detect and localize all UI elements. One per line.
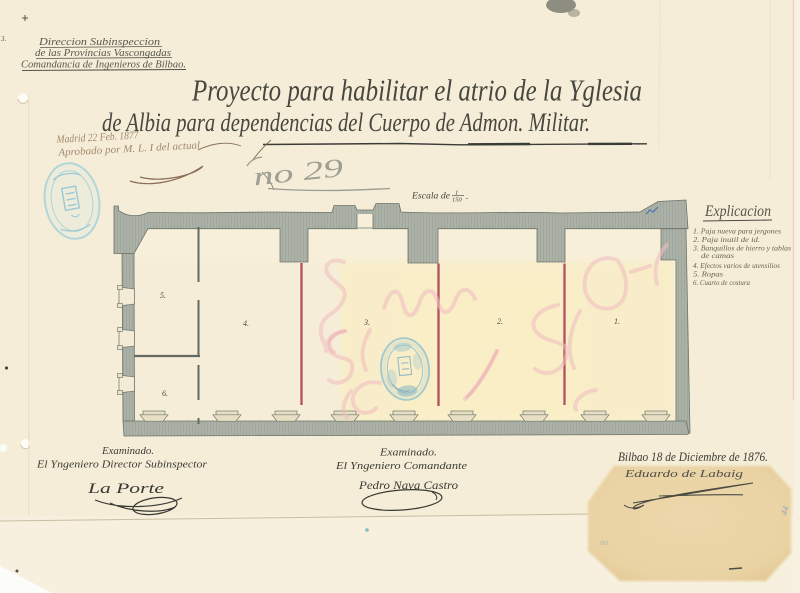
svg-text:5.: 5. — [160, 291, 166, 300]
svg-text:Proyecto para habilitar el atr: Proyecto para habilitar el atrio de la Y… — [191, 73, 642, 108]
svg-text:de camas: de camas — [701, 252, 734, 260]
svg-text:El Yngeniero Comandante: El Yngeniero Comandante — [335, 461, 468, 472]
svg-text:6.: 6. — [162, 389, 168, 398]
svg-text:de Albia para dependencias del: de Albia para dependencias del Cuerpo de… — [102, 108, 590, 137]
svg-text:Examinado.: Examinado. — [379, 448, 437, 459]
svg-text:1.: 1. — [614, 317, 620, 326]
svg-text:Examinado.: Examinado. — [101, 446, 154, 457]
svg-text:4. Efectos varios de utensilio: 4. Efectos varios de utensilios — [693, 262, 780, 270]
svg-text:3.: 3. — [363, 318, 370, 327]
svg-text:Explicacion: Explicacion — [704, 203, 771, 220]
svg-text:Escala de: Escala de — [411, 192, 450, 202]
svg-text:La Porte: La Porte — [87, 481, 165, 497]
svg-text:El Yngeniero Director Subinspe: El Yngeniero Director Subinspector — [36, 460, 207, 471]
svg-text:Comandancia de Ingenieros de B: Comandancia de Ingenieros de Bilbao. — [21, 59, 186, 71]
svg-text:.: . — [466, 191, 468, 201]
svg-text:Bilbao 18 de Diciembre de 1876: Bilbao 18 de Diciembre de 1876. — [618, 450, 768, 464]
svg-text:150: 150 — [452, 197, 463, 204]
svg-text:2.: 2. — [497, 317, 503, 326]
svg-text:1. Paja nueva para jergones: 1. Paja nueva para jergones — [693, 228, 781, 236]
svg-text:3.: 3. — [0, 35, 7, 43]
svg-text:4.: 4. — [243, 319, 249, 328]
svg-text:Eduardo de Labaig: Eduardo de Labaig — [624, 469, 743, 480]
svg-text:no: no — [600, 538, 608, 547]
svg-text:6. Cuarto de costura: 6. Cuarto de costura — [693, 279, 750, 287]
svg-text:5. Ropas: 5. Ropas — [693, 271, 723, 279]
svg-text:2. Paja inutil de id.: 2. Paja inutil de id. — [693, 236, 760, 244]
